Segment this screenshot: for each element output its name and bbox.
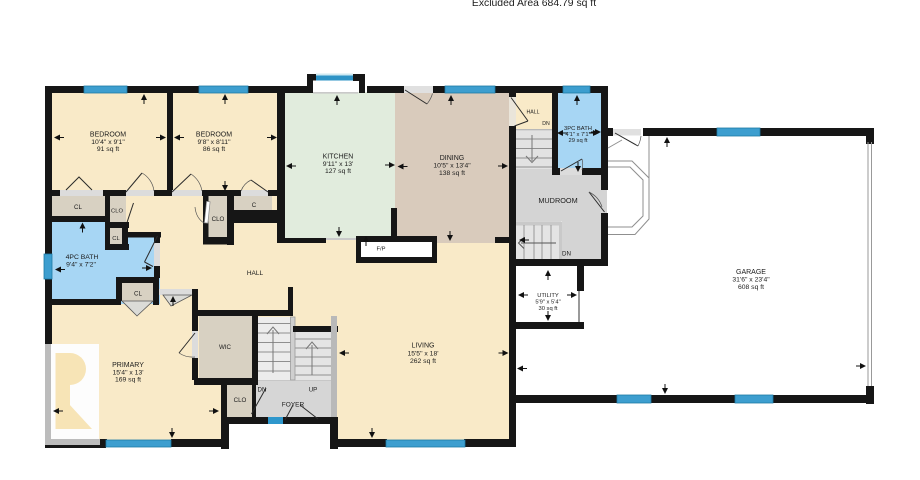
svg-text:9'8" x 8'11": 9'8" x 8'11" xyxy=(198,139,232,146)
svg-text:169 sq ft: 169 sq ft xyxy=(115,377,141,384)
svg-text:KITCHEN: KITCHEN xyxy=(323,154,354,161)
svg-text:HALL: HALL xyxy=(247,270,264,277)
svg-text:4PC BATH: 4PC BATH xyxy=(66,254,99,261)
svg-text:DINING: DINING xyxy=(440,155,465,162)
svg-text:DN: DN xyxy=(542,121,550,127)
svg-text:C: C xyxy=(252,202,257,209)
svg-text:FOYER: FOYER xyxy=(282,402,305,409)
svg-text:DN: DN xyxy=(258,387,267,394)
svg-text:CL: CL xyxy=(134,291,142,298)
svg-text:GARAGE: GARAGE xyxy=(736,269,766,276)
svg-text:WIC: WIC xyxy=(219,344,232,351)
svg-text:31'6" x 23'4": 31'6" x 23'4" xyxy=(732,277,770,284)
svg-text:BEDROOM: BEDROOM xyxy=(196,132,232,139)
svg-text:CLO: CLO xyxy=(111,209,123,215)
svg-text:262 sq ft: 262 sq ft xyxy=(410,358,436,365)
svg-text:9'11" x 13': 9'11" x 13' xyxy=(323,161,354,168)
svg-text:UTILITY: UTILITY xyxy=(537,293,559,299)
svg-text:608 sq ft: 608 sq ft xyxy=(738,284,764,291)
svg-text:BEDROOM: BEDROOM xyxy=(90,132,126,139)
svg-text:F/P: F/P xyxy=(376,247,385,253)
svg-text:91 sq ft: 91 sq ft xyxy=(97,146,119,153)
svg-text:CLO: CLO xyxy=(212,216,225,223)
svg-text:29 sq ft: 29 sq ft xyxy=(568,138,587,144)
svg-text:HALL: HALL xyxy=(527,110,540,116)
svg-text:10'4" x 9'1": 10'4" x 9'1" xyxy=(91,139,125,146)
svg-text:LIVING: LIVING xyxy=(412,343,435,350)
svg-text:15'4" x 13': 15'4" x 13' xyxy=(112,370,143,377)
svg-text:CL: CL xyxy=(74,204,82,211)
svg-text:CL: CL xyxy=(112,236,120,242)
svg-text:PRIMARY: PRIMARY xyxy=(112,362,144,369)
svg-text:138 sq ft: 138 sq ft xyxy=(439,170,465,177)
svg-text:UP: UP xyxy=(309,387,318,394)
svg-text:CLO: CLO xyxy=(234,397,247,404)
svg-text:9'4" x 7'2": 9'4" x 7'2" xyxy=(66,262,96,269)
svg-text:127 sq ft: 127 sq ft xyxy=(325,168,351,175)
svg-text:Excluded Area 684.79 sq ft: Excluded Area 684.79 sq ft xyxy=(472,0,596,9)
svg-text:10'5" x 13'4": 10'5" x 13'4" xyxy=(433,163,471,170)
svg-text:5'9" x 5'4": 5'9" x 5'4" xyxy=(535,300,560,306)
svg-text:MUDROOM: MUDROOM xyxy=(538,196,577,205)
svg-text:DN: DN xyxy=(562,251,571,258)
svg-text:86 sq ft: 86 sq ft xyxy=(203,146,225,153)
svg-text:15'5" x 18': 15'5" x 18' xyxy=(407,351,438,358)
